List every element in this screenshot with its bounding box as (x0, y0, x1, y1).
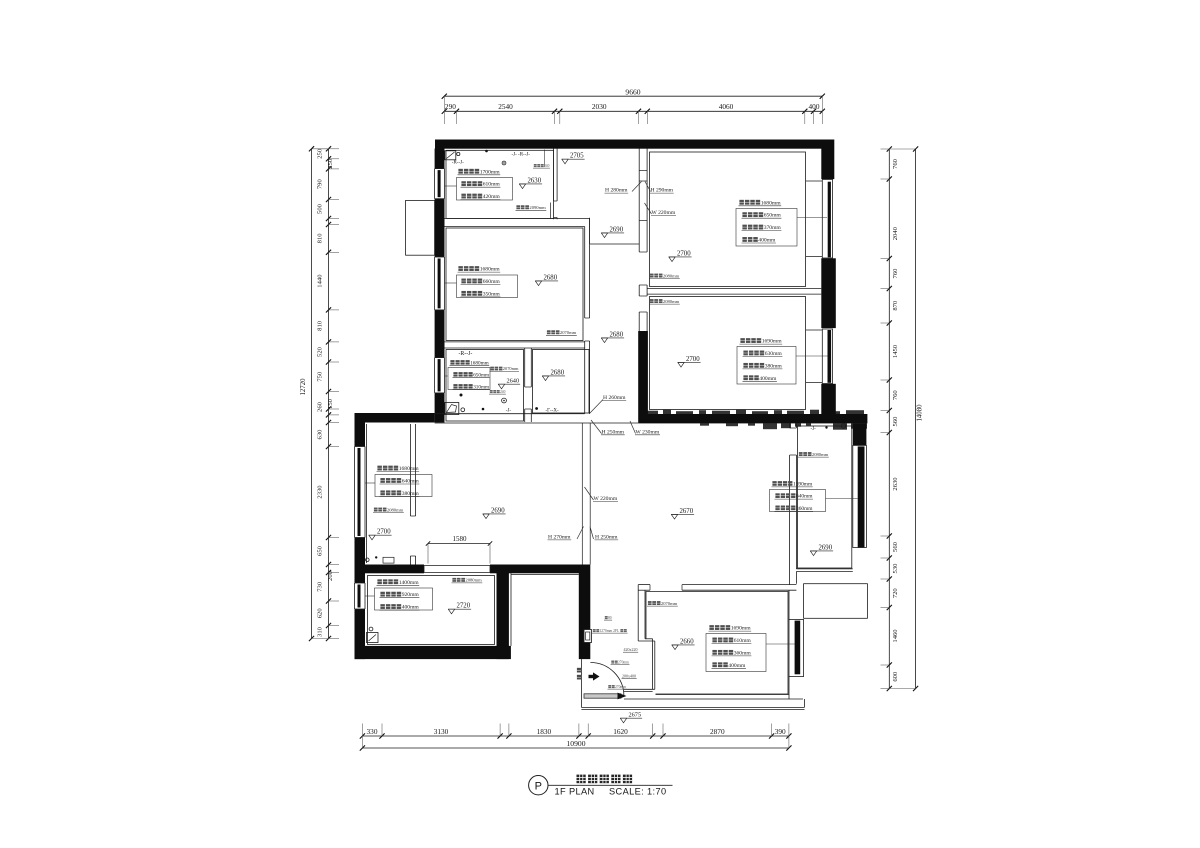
svg-text:870: 870 (892, 300, 899, 311)
svg-text:1690mm: 1690mm (762, 339, 783, 345)
svg-text:1270mm 2FL: 1270mm 2FL (600, 629, 620, 633)
svg-text:2690: 2690 (819, 544, 833, 551)
svg-text:370mm: 370mm (764, 225, 782, 231)
svg-text:2690: 2690 (491, 507, 505, 514)
svg-text:2070mm: 2070mm (560, 330, 577, 335)
svg-text:650mm: 650mm (764, 213, 782, 219)
svg-text:270mm: 270mm (615, 685, 626, 689)
svg-text:H 290mm: H 290mm (651, 188, 674, 194)
svg-text:2080mm: 2080mm (465, 578, 482, 583)
svg-text:2670: 2670 (680, 508, 694, 515)
svg-text:2690: 2690 (610, 226, 624, 233)
svg-text:1580: 1580 (453, 535, 468, 543)
svg-text:150: 150 (327, 398, 334, 409)
svg-text:260: 260 (317, 401, 324, 412)
svg-text:2630: 2630 (528, 177, 542, 184)
svg-text:-R--J-: -R--J- (459, 351, 473, 357)
svg-text:420x220: 420x220 (624, 647, 638, 652)
svg-text:400: 400 (809, 102, 820, 111)
svg-text:-Г--X-: -Г--X- (546, 408, 559, 413)
svg-text:H 270mm: H 270mm (548, 534, 571, 540)
svg-text:1680mm: 1680mm (399, 466, 420, 472)
svg-text:1400mm: 1400mm (399, 580, 420, 586)
svg-text:2070mm: 2070mm (503, 366, 519, 371)
svg-text:2720: 2720 (457, 603, 471, 610)
svg-text:400mm: 400mm (728, 663, 746, 669)
svg-text:600: 600 (892, 671, 899, 682)
svg-text:1460: 1460 (892, 629, 899, 643)
svg-text:2700: 2700 (377, 529, 391, 536)
svg-text:W 220mm: W 220mm (652, 210, 676, 216)
svg-text:-J-: -J- (811, 427, 817, 432)
svg-text:250: 250 (327, 158, 334, 169)
svg-text:2080mm: 2080mm (663, 273, 680, 278)
svg-text:2540: 2540 (498, 102, 513, 111)
svg-text:400mm: 400mm (402, 605, 420, 611)
svg-text:14080: 14080 (917, 404, 924, 422)
svg-text:H 260mm: H 260mm (603, 395, 626, 401)
svg-text:400mm: 400mm (758, 238, 776, 244)
svg-text:620: 620 (317, 608, 324, 619)
svg-text:H 280mm: H 280mm (605, 188, 628, 194)
svg-text:2080mm: 2080mm (812, 452, 829, 457)
svg-text:920mm: 920mm (402, 592, 420, 598)
svg-text:1F PLAN: 1F PLAN (555, 787, 595, 797)
svg-text:360mm: 360mm (796, 506, 813, 512)
svg-text:380mm: 380mm (402, 491, 420, 497)
svg-text:2680: 2680 (551, 369, 565, 376)
svg-text:P: P (535, 780, 542, 792)
svg-text:630: 630 (317, 429, 324, 440)
svg-text:500: 500 (317, 203, 324, 214)
svg-text:SCALE: 1:70: SCALE: 1:70 (609, 787, 667, 797)
svg-text:1680mm: 1680mm (761, 200, 782, 206)
svg-text:360mm: 360mm (734, 650, 752, 656)
svg-text:2070mm: 2070mm (661, 601, 678, 606)
svg-text:250: 250 (317, 148, 324, 159)
svg-text:660mm: 660mm (483, 279, 501, 285)
svg-text:2675: 2675 (629, 712, 642, 719)
svg-text:1620: 1620 (613, 727, 628, 736)
svg-text:2330: 2330 (317, 485, 324, 499)
svg-text:2030: 2030 (592, 102, 607, 111)
svg-text:610mm: 610mm (734, 638, 752, 644)
svg-text:2700: 2700 (677, 250, 691, 257)
svg-text:760: 760 (892, 390, 899, 401)
svg-text:2040: 2040 (892, 226, 899, 240)
svg-text:2700: 2700 (686, 356, 700, 363)
svg-text:4060: 4060 (719, 102, 734, 111)
svg-text:1450: 1450 (892, 344, 899, 358)
svg-text:2680: 2680 (610, 331, 624, 338)
svg-text:1690mm: 1690mm (793, 481, 813, 487)
svg-text:810: 810 (317, 320, 324, 331)
svg-text:H 250mm: H 250mm (595, 534, 618, 540)
svg-text:750: 750 (317, 371, 324, 382)
svg-text:520: 520 (317, 346, 324, 357)
svg-text:650mm: 650mm (473, 372, 489, 378)
svg-text:2090mm: 2090mm (529, 205, 546, 210)
svg-text:270mm: 270mm (618, 660, 629, 664)
svg-text:2680: 2680 (544, 274, 558, 281)
svg-text:W 220mm: W 220mm (594, 496, 618, 502)
svg-text:2080mm: 2080mm (387, 507, 404, 512)
svg-text:560: 560 (892, 541, 899, 552)
svg-text:400mm: 400mm (759, 376, 777, 382)
svg-text:-J- -R--J-: -J- -R--J- (512, 152, 531, 157)
svg-text:760: 760 (892, 158, 899, 169)
svg-text:3130: 3130 (434, 727, 449, 736)
svg-text:530: 530 (892, 563, 899, 574)
svg-text:790: 790 (317, 179, 324, 190)
svg-text:-J-: -J- (506, 408, 512, 413)
svg-text:560: 560 (892, 416, 899, 427)
svg-text:10900: 10900 (567, 739, 586, 748)
svg-text:330: 330 (367, 727, 378, 736)
svg-text:310: 310 (317, 626, 324, 637)
svg-text:12720: 12720 (300, 378, 307, 396)
svg-text:9660: 9660 (625, 87, 640, 96)
svg-text:-R--J-: -R--J- (452, 161, 464, 166)
svg-text:1830: 1830 (537, 727, 552, 736)
svg-text:420mm: 420mm (483, 194, 501, 200)
svg-text:200x400: 200x400 (622, 673, 636, 678)
svg-text:240: 240 (500, 390, 506, 394)
svg-text:1700mm: 1700mm (480, 169, 501, 175)
svg-text:1690mm: 1690mm (731, 626, 752, 632)
svg-text:390: 390 (775, 727, 786, 736)
svg-text:2080mm: 2080mm (663, 299, 680, 304)
svg-text:1680mm: 1680mm (480, 267, 501, 273)
svg-text:640mm: 640mm (402, 479, 420, 485)
svg-text:240: 240 (544, 164, 550, 168)
svg-text:350mm: 350mm (483, 291, 501, 297)
svg-text:380mm: 380mm (765, 363, 783, 369)
svg-text:2630: 2630 (892, 477, 899, 491)
svg-text:610mm: 610mm (483, 182, 501, 188)
svg-text:2660: 2660 (680, 638, 694, 645)
svg-text:200: 200 (327, 570, 334, 581)
svg-text:H 250mm: H 250mm (602, 429, 625, 435)
svg-text:80: 80 (608, 616, 612, 620)
svg-text:650: 650 (317, 545, 324, 556)
svg-text:290: 290 (445, 102, 456, 111)
svg-text:640mm: 640mm (796, 494, 813, 500)
svg-text:W 230mm: W 230mm (636, 429, 660, 435)
svg-text:730: 730 (317, 581, 324, 592)
svg-text:630mm: 630mm (765, 351, 783, 357)
svg-text:720: 720 (892, 588, 899, 599)
svg-text:810: 810 (317, 233, 324, 244)
svg-text:1680mm: 1680mm (470, 360, 488, 366)
svg-text:2705: 2705 (570, 153, 584, 160)
svg-text:2870: 2870 (710, 727, 725, 736)
svg-text:2640: 2640 (507, 378, 520, 385)
svg-text:1440: 1440 (317, 274, 324, 288)
svg-text:760: 760 (892, 268, 899, 279)
